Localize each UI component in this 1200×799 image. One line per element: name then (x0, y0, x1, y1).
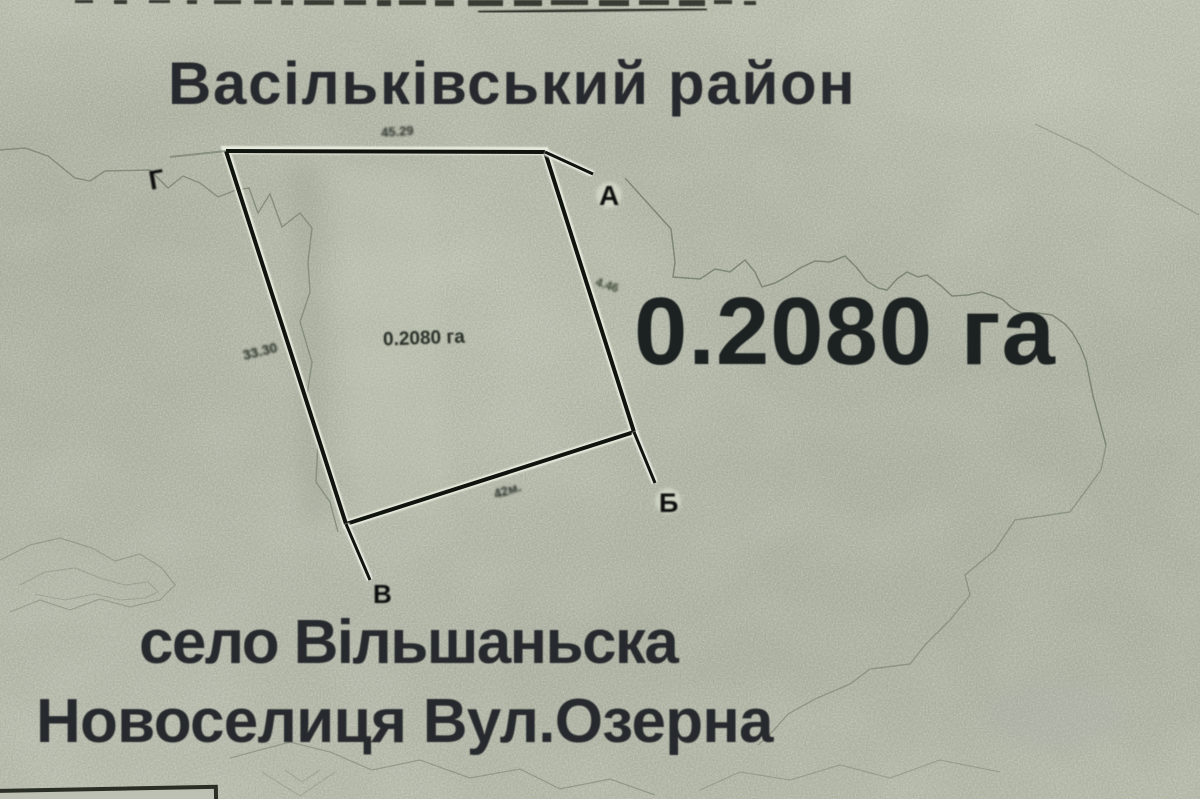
svg-text:А: А (599, 180, 619, 211)
svg-text:0.2080 га: 0.2080 га (634, 278, 1056, 385)
svg-text:село Вільшаньска: село Вільшаньска (139, 608, 679, 677)
svg-text:В: В (373, 579, 392, 609)
svg-text:0.2080 га: 0.2080 га (383, 327, 466, 351)
svg-text:Новоселиця Вул.Озерна: Новоселиця Вул.Озерна (36, 687, 774, 756)
svg-text:45.29: 45.29 (381, 123, 415, 140)
svg-text:Б: Б (659, 488, 678, 518)
svg-text:Васільківський район: Васільківський район (168, 50, 856, 117)
